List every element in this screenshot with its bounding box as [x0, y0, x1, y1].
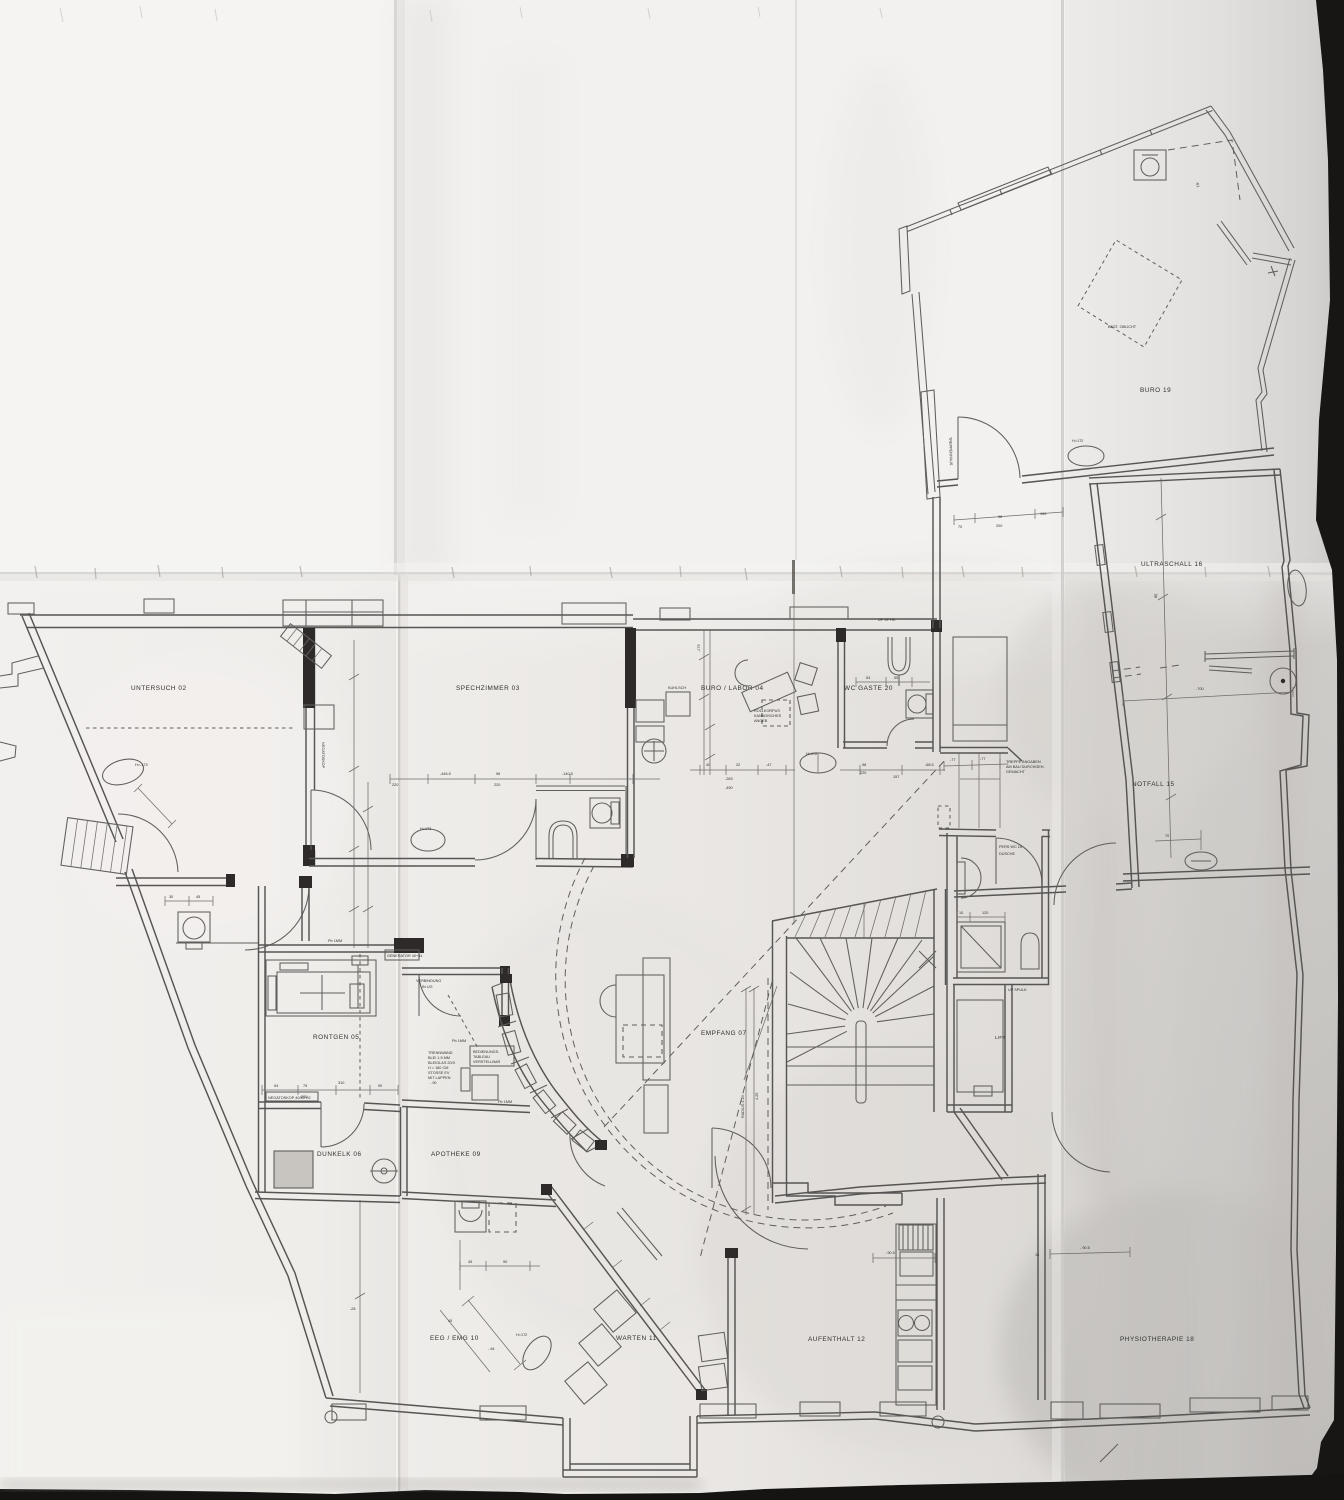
- svg-text:ROLLKORPUS: ROLLKORPUS: [754, 709, 780, 713]
- svg-text:PHYSIOTHERAPIE 18: PHYSIOTHERAPIE 18: [1120, 1336, 1194, 1343]
- svg-text:UP SPULK: UP SPULK: [1008, 988, 1027, 992]
- svg-text:-179: -179: [697, 644, 701, 652]
- svg-text:220: 220: [392, 783, 398, 787]
- svg-text:NEGATOSKOP: NEGATOSKOP: [321, 742, 325, 769]
- svg-text:H=172: H=172: [1072, 439, 1083, 443]
- svg-text:IN UG: IN UG: [422, 985, 433, 989]
- svg-text:SPECHZIMMER 03: SPECHZIMMER 03: [456, 685, 520, 692]
- svg-text:30: 30: [169, 895, 173, 899]
- svg-text:22: 22: [736, 763, 740, 767]
- svg-text:BEDIENUNGS-: BEDIENUNGS-: [473, 1050, 500, 1054]
- svg-text:45: 45: [468, 1260, 472, 1264]
- svg-text:45: 45: [196, 895, 200, 899]
- svg-text:DUNKELK 06: DUNKELK 06: [317, 1151, 362, 1158]
- svg-text:85: 85: [1154, 594, 1158, 599]
- svg-text:GENERATOR 40+51: GENERATOR 40+51: [387, 954, 422, 958]
- svg-text:70: 70: [958, 525, 962, 529]
- svg-text:310: 310: [338, 1081, 344, 1085]
- svg-text:-140.5: -140.5: [562, 772, 573, 776]
- svg-text:75: 75: [303, 1084, 307, 1088]
- svg-text:- 90.5: - 90.5: [1080, 1246, 1090, 1250]
- svg-text:-490: -490: [725, 786, 733, 790]
- svg-text:H=172: H=172: [516, 1333, 527, 1337]
- svg-text:Pb 1MM: Pb 1MM: [328, 939, 342, 943]
- svg-text:AM BAU DURCHGEH.: AM BAU DURCHGEH.: [1006, 765, 1045, 769]
- svg-text:10: 10: [959, 911, 963, 915]
- svg-text:EEG / EMG 10: EEG / EMG 10: [430, 1335, 479, 1342]
- svg-text:200: 200: [996, 524, 1002, 528]
- svg-text:PERS WC 16: PERS WC 16: [999, 845, 1022, 849]
- svg-text:54: 54: [866, 676, 870, 680]
- svg-text:-28: -28: [350, 1307, 356, 1311]
- svg-text:120: 120: [982, 911, 988, 915]
- svg-text:100: 100: [1040, 512, 1046, 516]
- svg-text:KANADISCHES: KANADISCHES: [754, 714, 782, 718]
- svg-text:90: 90: [378, 1084, 382, 1088]
- svg-text:BLEI 1.5 MM: BLEI 1.5 MM: [428, 1056, 450, 1060]
- svg-text:DUSCHE: DUSCHE: [999, 852, 1016, 856]
- svg-text:RONTGEN 05: RONTGEN 05: [313, 1034, 359, 1041]
- svg-text:ULTRASCHALL 16: ULTRASCHALL 16: [1141, 561, 1203, 568]
- svg-text:EMPFANG 07: EMPFANG 07: [701, 1030, 747, 1037]
- svg-text:NEGATOSKOP 40/50 H2: NEGATOSKOP 40/50 H2: [268, 1096, 311, 1100]
- svg-text:NOTFALL 15: NOTFALL 15: [1132, 781, 1175, 788]
- svg-text:-283: -283: [725, 777, 733, 781]
- svg-text:96: 96: [998, 515, 1002, 519]
- svg-text:4.25: 4.25: [755, 1093, 759, 1100]
- svg-text:40: 40: [706, 763, 710, 767]
- svg-text:UP SP HK: UP SP HK: [878, 618, 896, 622]
- svg-text:UNTERSUCH 02: UNTERSUCH 02: [131, 685, 187, 692]
- svg-text:TRENNWAND: TRENNWAND: [428, 1051, 453, 1055]
- svg-text:-77: -77: [980, 757, 986, 761]
- svg-text:H=172: H=172: [806, 752, 817, 756]
- svg-text:-77: -77: [950, 758, 956, 762]
- svg-text:220: 220: [860, 771, 866, 775]
- svg-text:45: 45: [448, 1319, 452, 1323]
- svg-text:- 64: - 64: [488, 1347, 495, 1351]
- svg-text:16: 16: [1035, 1253, 1039, 1257]
- svg-text:- 90: - 90: [430, 1081, 437, 1085]
- svg-text:BURO 19: BURO 19: [1140, 387, 1171, 394]
- svg-text:-700: -700: [1196, 687, 1204, 691]
- svg-text:VERBINDUNG: VERBINDUNG: [416, 979, 441, 983]
- svg-text:- 90.5: - 90.5: [885, 1251, 895, 1255]
- svg-text:BLEIGLAS 20/X: BLEIGLAS 20/X: [428, 1061, 456, 1065]
- svg-text:TABLEAU: TABLEAU: [473, 1055, 490, 1059]
- svg-text:LIFT: LIFT: [995, 1035, 1006, 1041]
- svg-text:H=-173: H=-173: [135, 763, 148, 767]
- svg-text:-446.5: -446.5: [440, 772, 451, 776]
- svg-text:KUHLSCH: KUHLSCH: [668, 686, 686, 690]
- svg-text:94: 94: [274, 1084, 278, 1088]
- svg-text:Pb 1MM: Pb 1MM: [498, 1100, 512, 1104]
- svg-text:ANGEB: ANGEB: [754, 719, 768, 723]
- svg-text:98: 98: [862, 763, 866, 767]
- svg-text:55: 55: [894, 676, 898, 680]
- svg-text:96: 96: [496, 772, 500, 776]
- svg-text:-47: -47: [766, 763, 772, 767]
- svg-text:TREPPE ANGABEN: TREPPE ANGABEN: [1006, 760, 1041, 764]
- svg-text:-68.5: -68.5: [925, 763, 934, 767]
- svg-text:BEST. OBLICHT: BEST. OBLICHT: [1108, 325, 1137, 329]
- svg-text:90: 90: [503, 1260, 507, 1264]
- svg-text:WARTEN 11: WARTEN 11: [616, 1335, 657, 1342]
- svg-text:H = 180 CM: H = 180 CM: [428, 1066, 448, 1070]
- svg-text:BURO / LABOR 04: BURO / LABOR 04: [701, 685, 764, 692]
- svg-text:H=173: H=173: [420, 827, 431, 831]
- svg-text:AUFENTHALT 12: AUFENTHALT 12: [808, 1336, 865, 1343]
- svg-text:VERSTELLBAR: VERSTELLBAR: [473, 1060, 500, 1064]
- svg-text:220: 220: [494, 783, 500, 787]
- svg-text:APOTHEKE 09: APOTHEKE 09: [431, 1151, 481, 1158]
- svg-text:70: 70: [1165, 834, 1169, 838]
- svg-text:Pb 1MM: Pb 1MM: [452, 1039, 466, 1043]
- svg-text:MIT LAPPEN: MIT LAPPEN: [428, 1076, 451, 1080]
- svg-text:STOSSE EV: STOSSE EV: [428, 1071, 450, 1075]
- svg-text:GEMACHT: GEMACHT: [1006, 770, 1026, 774]
- svg-text:157: 157: [893, 775, 899, 779]
